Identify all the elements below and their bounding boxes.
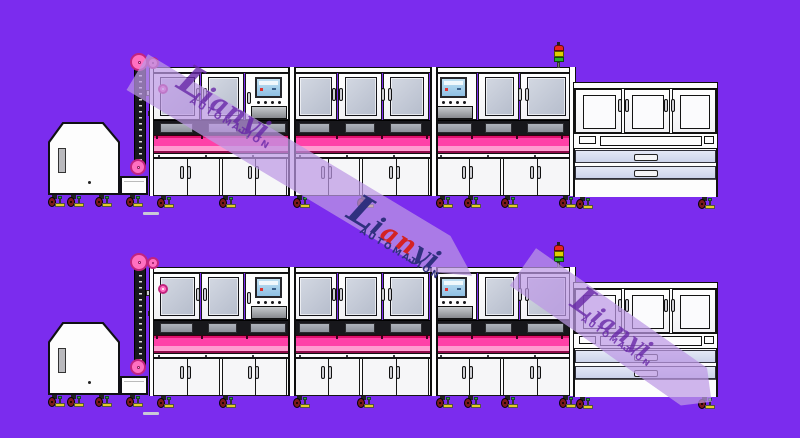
cabinet-door-handle [180, 166, 184, 179]
door-handle [196, 288, 200, 301]
hmi-button [264, 101, 267, 104]
door-handle [525, 88, 529, 101]
caster-wheel-assembly [436, 396, 453, 410]
caster-wheel-hub [70, 201, 72, 203]
caster-wheel-assembly [576, 397, 593, 411]
hopper-outfeed-inner-line [124, 181, 144, 182]
cabinet-door-handle [180, 366, 184, 379]
station-drawer [575, 166, 716, 179]
caster-wheel-assembly [559, 196, 576, 210]
caster-wheel-hub [467, 402, 469, 404]
hopper-outfeed-box [120, 376, 148, 395]
elevator-pulley [147, 257, 159, 269]
station-door-window [680, 295, 710, 329]
leveling-foot-pad [226, 404, 236, 408]
hmi-button [456, 301, 459, 304]
caster-wheel-hub [467, 202, 469, 204]
recess-slab [390, 323, 422, 333]
station-drawer [575, 150, 716, 163]
caster-wheel-hub [504, 402, 506, 404]
hmi-screen [440, 77, 467, 98]
caster-wheel-assembly [698, 197, 715, 211]
caster-wheel-hub [360, 402, 362, 404]
caster-wheel-assembly [48, 195, 65, 209]
caster-wheel-assembly [157, 196, 174, 210]
cabinet-door-handle [469, 366, 473, 379]
pulley-hub [137, 366, 140, 369]
station-top-rail [573, 82, 718, 89]
bay-frame [288, 267, 296, 396]
scale-dash [143, 412, 159, 415]
caster-wheel-assembly [219, 196, 236, 210]
station-door-window [632, 95, 664, 129]
end-frame [149, 267, 154, 396]
door-window-glass [345, 277, 377, 316]
cabinet-door-handle [396, 366, 400, 379]
cad-canvas: Lianyi AUTOMATION Lianyi AUTOMATION Lian… [0, 0, 800, 438]
caster-wheel-hub [129, 201, 131, 203]
leveling-foot-pad [583, 205, 593, 209]
cabinet-door-handle [530, 166, 534, 179]
door-window-glass [208, 277, 239, 316]
caster-wheel-hub [296, 202, 298, 204]
elevator-pulley [130, 159, 146, 175]
enclosure-door [338, 273, 382, 320]
recess-slab [299, 323, 330, 333]
hmi-screen-content [444, 281, 463, 285]
hmi-screen-pixel [272, 88, 276, 90]
hopper-dot [88, 181, 91, 184]
hmi-screen [255, 77, 282, 98]
hmi-screen-pixel [445, 288, 448, 291]
hmi-screen [440, 277, 467, 298]
door-handle [388, 288, 392, 301]
leveling-foot-pad [164, 204, 174, 208]
hmi-screen-pixel [260, 288, 263, 291]
hmi-screen-content [259, 281, 278, 285]
enclosure-door [292, 73, 337, 120]
caster-wheel-hub [70, 401, 72, 403]
recess-slab [527, 123, 564, 133]
hmi-button [271, 301, 274, 304]
station-door [624, 89, 670, 133]
caster-wheel-hub [439, 202, 441, 204]
caster-wheel-assembly [48, 395, 65, 409]
recess-slab [435, 123, 472, 133]
caster-wheel-hub [160, 402, 162, 404]
cabinet-door-handle [537, 166, 541, 179]
hmi-screen-pixel [260, 88, 263, 91]
leveling-foot-pad [566, 404, 576, 408]
caster-wheel-assembly [219, 396, 236, 410]
enclosure-door [338, 73, 382, 120]
hopper-slot [58, 348, 66, 373]
cabinet-door-handle [537, 366, 541, 379]
station-door [575, 89, 622, 133]
pulley-hub [138, 61, 141, 64]
cabinet-door-handle [469, 166, 473, 179]
recess-slab [345, 123, 375, 133]
leveling-foot-pad [583, 405, 593, 409]
caster-wheel-hub [222, 202, 224, 204]
cabinet-door-handle [389, 166, 393, 179]
bay-frame [430, 67, 438, 196]
leveling-foot-pad [705, 205, 715, 209]
caster-wheel-assembly [357, 396, 374, 410]
door-handle [381, 88, 385, 101]
leveling-foot-pad [471, 204, 481, 208]
hmi-button [278, 301, 281, 304]
caster-wheel-hub [562, 402, 564, 404]
chain-links [139, 263, 142, 367]
scale-dash [143, 212, 159, 215]
leveling-foot-pad [443, 204, 453, 208]
caster-wheel-hub [98, 401, 100, 403]
leveling-foot-pad [300, 204, 310, 208]
leveling-foot-pad [55, 203, 65, 207]
cabinet-door-handle [255, 366, 259, 379]
caster-wheel-hub [51, 201, 53, 203]
cabinet-door-handle [530, 366, 534, 379]
cabinet-door-handle [389, 366, 393, 379]
infeed-knob-hub [162, 288, 164, 290]
caster-wheel-hub [562, 202, 564, 204]
elevator-chain [134, 262, 146, 368]
leveling-foot-pad [508, 404, 518, 408]
station-door [672, 289, 716, 333]
hmi-button [271, 101, 274, 104]
conveyor-band-bolts [156, 336, 569, 339]
leveling-foot-pad [566, 204, 576, 208]
recess-slab [208, 323, 237, 333]
door-handle [381, 288, 385, 301]
conveyor-band [150, 335, 575, 353]
caster-wheel-assembly [126, 195, 143, 209]
enclosure-door [478, 73, 519, 120]
cabinet-door-handle [187, 366, 191, 379]
door-handle [332, 88, 336, 101]
caster-wheel-hub [504, 202, 506, 204]
pulley-hub [152, 262, 154, 264]
hmi-control-panel [245, 273, 291, 320]
recess-slab [299, 123, 330, 133]
pulley-hub [137, 166, 140, 169]
cabinet-door-handle [248, 166, 252, 179]
caster-wheel-assembly [67, 195, 84, 209]
bay-frame [430, 267, 438, 396]
cabinet-door-handle [396, 166, 400, 179]
hmi-button [257, 301, 260, 304]
station-bottom-panel [575, 179, 716, 197]
drawer-handle [634, 170, 658, 177]
door-window-glass [299, 77, 332, 116]
cabinet-door-handle [248, 366, 252, 379]
caster-wheel-hub [296, 402, 298, 404]
caster-wheel-hub [222, 402, 224, 404]
hmi-button [278, 101, 281, 104]
leveling-foot-pad [471, 404, 481, 408]
caster-wheel-hub [701, 403, 703, 405]
leveling-foot-pad [74, 203, 84, 207]
door-window-glass [390, 277, 424, 316]
hmi-screen-pixel [272, 288, 276, 290]
cabinet-door-handle [187, 166, 191, 179]
hopper-dot [88, 381, 91, 384]
hmi-side-handle [247, 292, 251, 304]
rail-bolts [158, 155, 567, 157]
hmi-tray [251, 306, 287, 319]
caster-wheel-assembly [95, 195, 112, 209]
pulley-hub [138, 261, 141, 264]
leveling-foot-pad [74, 403, 84, 407]
hmi-button [463, 301, 466, 304]
station-door-window [583, 95, 616, 129]
caster-wheel-hub [579, 403, 581, 405]
station-door-handle [618, 99, 622, 112]
caster-wheel-assembly [464, 396, 481, 410]
cabinet-door-handle [328, 366, 332, 379]
hmi-button [456, 101, 459, 104]
station-mid-inset [579, 136, 596, 144]
door-window-glass [485, 77, 514, 116]
station-door-handle [671, 299, 675, 312]
caster-wheel-assembly [464, 196, 481, 210]
hmi-button [449, 301, 452, 304]
station-door-handle [671, 99, 675, 112]
door-handle [518, 88, 522, 101]
caster-wheel-assembly [157, 396, 174, 410]
drawer-handle [634, 154, 658, 161]
recess-slab [390, 123, 422, 133]
hmi-button [449, 101, 452, 104]
recess-slab [160, 323, 193, 333]
cabinet-door-handle [321, 366, 325, 379]
door-window-glass [345, 77, 377, 116]
hmi-button [463, 101, 466, 104]
hmi-screen [255, 277, 282, 298]
door-window-glass [527, 77, 566, 116]
elevator-pulley [130, 253, 148, 271]
elevator-pulley [130, 359, 146, 375]
enclosure-door [201, 273, 244, 320]
caster-wheel-assembly [95, 395, 112, 409]
leveling-foot-pad [443, 404, 453, 408]
enclosure-door [292, 273, 337, 320]
hmi-button [442, 301, 445, 304]
caster-wheel-hub [701, 203, 703, 205]
leveling-foot-pad [508, 204, 518, 208]
door-handle [332, 288, 336, 301]
caster-wheel-assembly [501, 196, 518, 210]
recess-slab [345, 323, 375, 333]
hmi-screen-content [259, 81, 278, 85]
door-handle [339, 88, 343, 101]
recess-slab [250, 323, 286, 333]
caster-wheel-hub [129, 401, 131, 403]
door-handle [203, 288, 207, 301]
station-mid-inset [704, 336, 714, 344]
door-window-glass [485, 277, 514, 316]
station-mid-inset [600, 136, 702, 146]
cabinet-door-handle [462, 166, 466, 179]
station-mid-inset [704, 136, 714, 144]
hmi-screen-content [444, 81, 463, 85]
leveling-foot-pad [102, 403, 112, 407]
hmi-tray [436, 306, 473, 319]
cabinet-door-handle [462, 366, 466, 379]
caster-wheel-hub [579, 203, 581, 205]
hmi-button [264, 301, 267, 304]
enclosure-door [153, 273, 200, 320]
caster-wheel-hub [98, 201, 100, 203]
enclosure-door [478, 273, 519, 320]
caster-wheel-assembly [67, 395, 84, 409]
hmi-tray [436, 106, 473, 119]
leveling-foot-pad [133, 403, 143, 407]
machine-row-top [0, 45, 800, 223]
hmi-screen-pixel [445, 88, 448, 91]
hmi-button [442, 101, 445, 104]
leveling-foot-pad [102, 203, 112, 207]
station-door-handle [664, 299, 668, 312]
caster-wheel-hub [51, 401, 53, 403]
hopper-slot [58, 148, 66, 173]
recess-slab [485, 123, 512, 133]
caster-wheel-assembly [126, 395, 143, 409]
caster-wheel-assembly [293, 396, 310, 410]
leveling-foot-pad [364, 404, 374, 408]
leveling-foot-pad [226, 204, 236, 208]
stack-light-pole [557, 62, 560, 68]
door-handle [388, 88, 392, 101]
caster-wheel-hub [160, 202, 162, 204]
caster-wheel-hub [439, 402, 441, 404]
recess-slab [435, 323, 472, 333]
station-door [672, 89, 716, 133]
caster-wheel-assembly [576, 197, 593, 211]
hopper-outfeed-box [120, 176, 148, 195]
door-window-glass [160, 277, 195, 316]
hopper-outfeed-inner-line [124, 381, 144, 382]
station-door-handle [625, 99, 629, 112]
station-door-handle [664, 99, 668, 112]
hmi-screen-pixel [457, 288, 461, 290]
caster-wheel-assembly [436, 196, 453, 210]
caster-wheel-assembly [559, 396, 576, 410]
leveling-foot-pad [705, 405, 715, 409]
leveling-foot-pad [300, 404, 310, 408]
caster-wheel-assembly [501, 396, 518, 410]
door-window-glass [390, 77, 424, 116]
door-handle [339, 288, 343, 301]
station-door-window [680, 95, 710, 129]
door-window-glass [299, 277, 332, 316]
hmi-screen-pixel [457, 88, 461, 90]
leveling-foot-pad [55, 403, 65, 407]
recess-slab [527, 323, 564, 333]
recess-slab [485, 323, 512, 333]
leveling-foot-pad [133, 203, 143, 207]
leveling-foot-pad [164, 404, 174, 408]
infeed-knob [158, 284, 168, 294]
station-door-handle [625, 299, 629, 312]
rail-bolts [158, 355, 567, 357]
